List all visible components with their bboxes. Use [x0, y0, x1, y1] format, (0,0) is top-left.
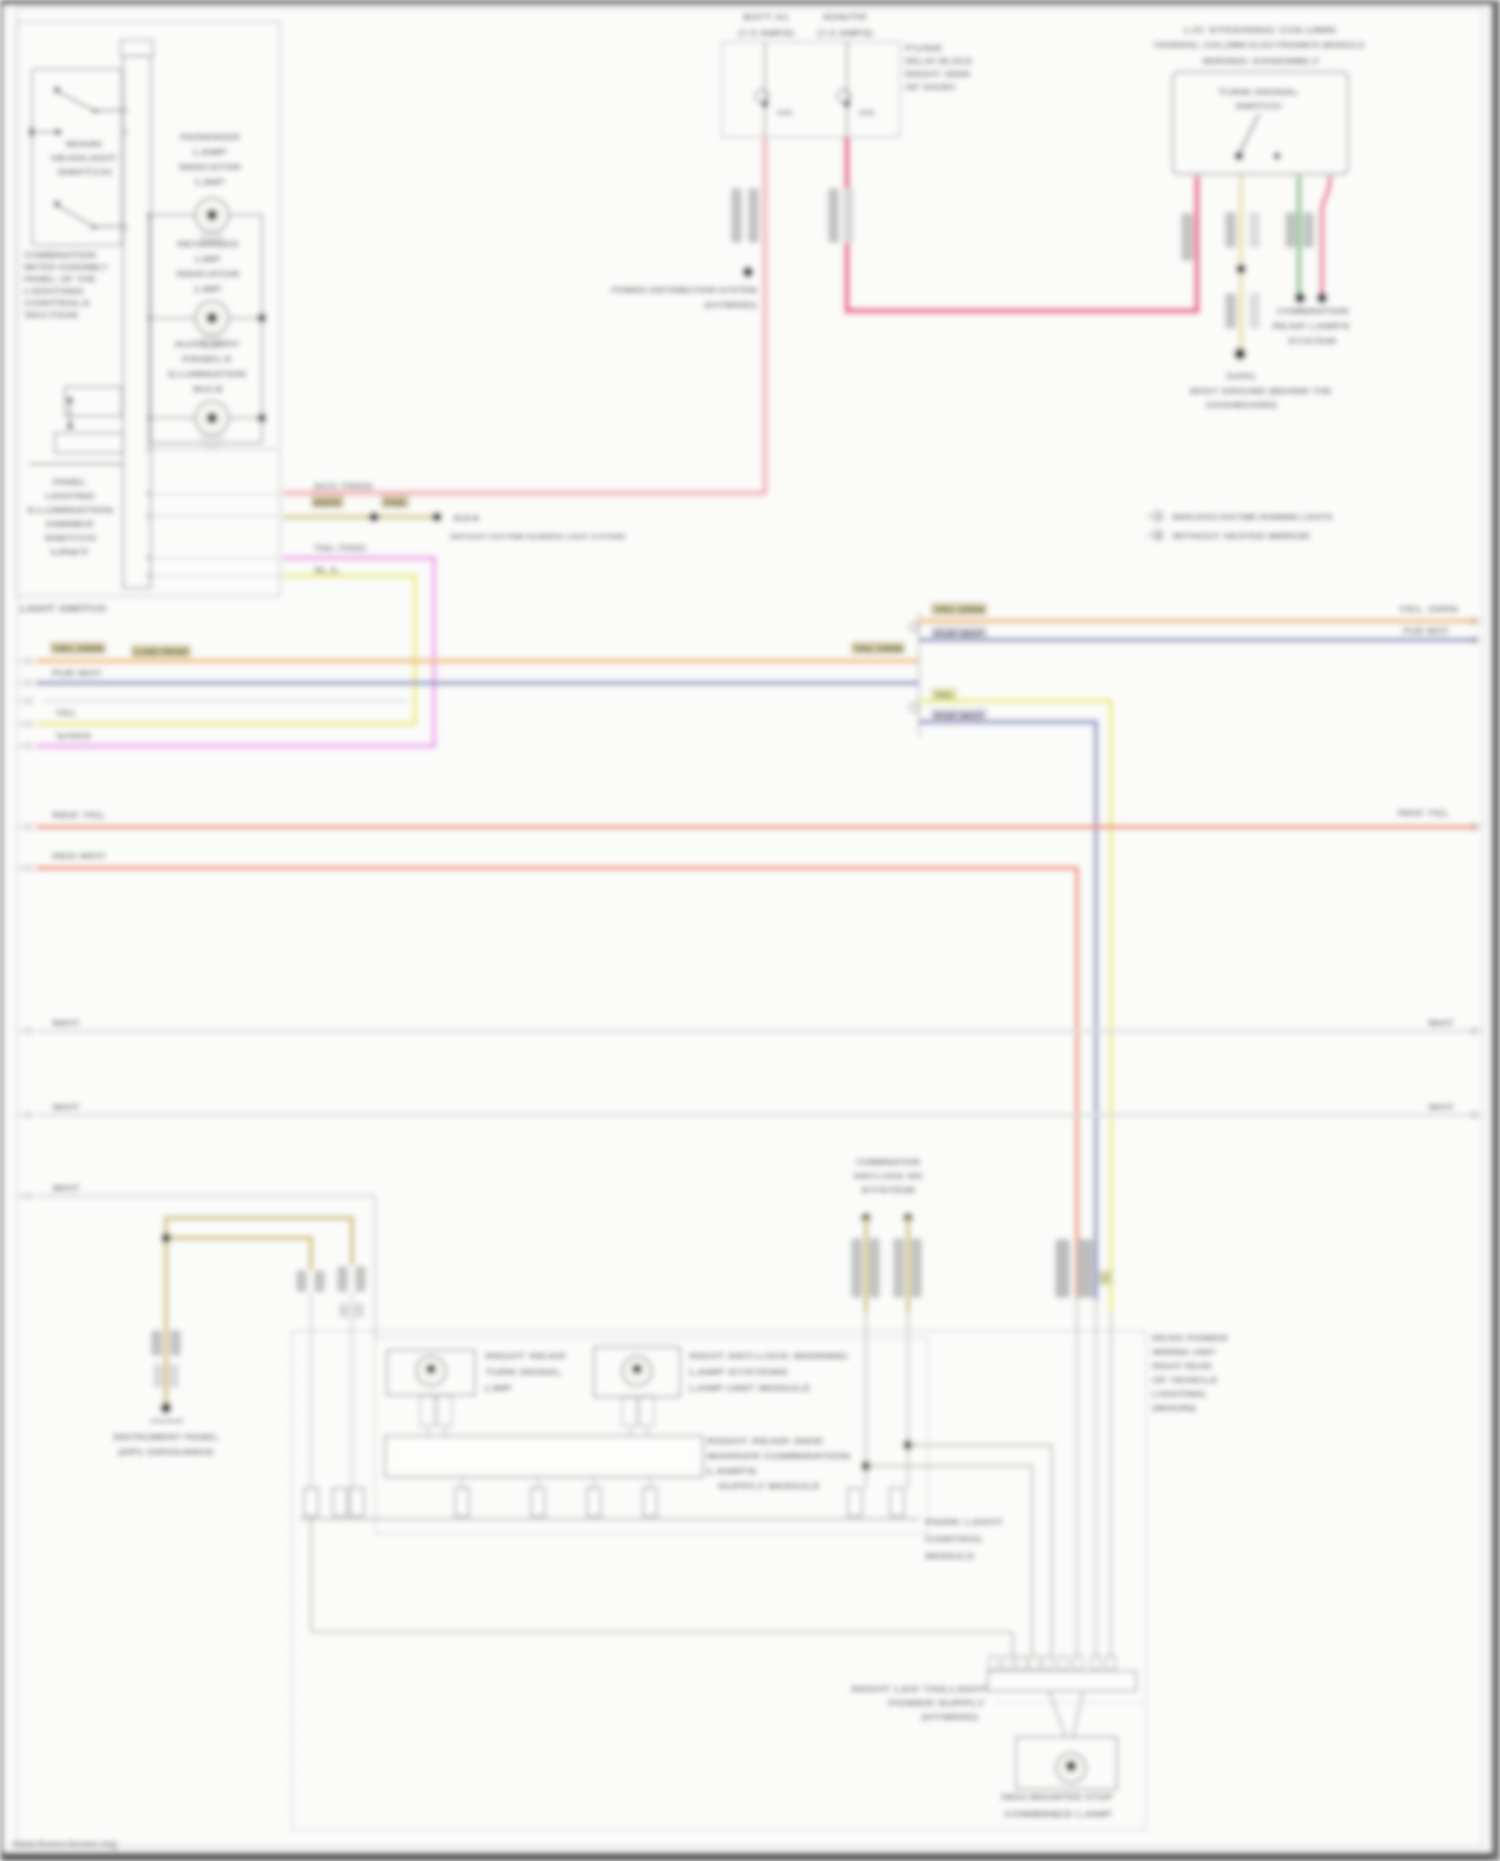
svg-text:TURN SIGNAL: TURN SIGNAL [1218, 88, 1299, 97]
svg-text:MAIN: MAIN [66, 140, 102, 149]
svg-text:RELAY BLOCK: RELAY BLOCK [905, 57, 973, 66]
svg-text:LIGHTING: LIGHTING [24, 287, 84, 296]
svg-text:(7.5 AMPS): (7.5 AMPS) [738, 29, 794, 38]
svg-text:FUSE: FUSE [905, 44, 944, 53]
svg-text:LMP: LMP [195, 178, 226, 187]
svg-text:YEL GRN: YEL GRN [1398, 605, 1458, 614]
svg-text:POWER DISTRIBUTION SYSTEM: POWER DISTRIBUTION SYSTEM [611, 286, 757, 295]
svg-text:10A: 10A [776, 108, 794, 117]
svg-text:IGN/TR: IGN/TR [823, 13, 867, 22]
svg-text:COMBINATION: COMBINATION [856, 1158, 920, 1167]
svg-text:COMBINATION: COMBINATION [1277, 307, 1349, 316]
svg-text:LMP: LMP [195, 255, 222, 264]
svg-text:RIGHT LED TAILLIGHT: RIGHT LED TAILLIGHT [851, 1685, 988, 1694]
svg-text:(7.5 AMPS): (7.5 AMPS) [817, 29, 873, 38]
svg-text:REAR LAMPS: REAR LAMPS [1272, 322, 1351, 331]
svg-text:(MAIN): (MAIN) [1152, 1404, 1197, 1413]
svg-text:LMP: LMP [194, 285, 223, 294]
svg-text:BODY GROUND (BEHIND THE: BODY GROUND (BEHIND THE [1190, 387, 1333, 396]
svg-text:PNK: PNK [384, 499, 406, 508]
svg-text:DIMMER: DIMMER [46, 520, 94, 529]
svg-text:COMBINED LAMP: COMBINED LAMP [1004, 1810, 1113, 1819]
svg-text:RIGHT ANTI-LOCK WARNING: RIGHT ANTI-LOCK WARNING [689, 1352, 848, 1361]
svg-text:S24: S24 [453, 514, 480, 523]
svg-text:RIGHT SIDE: RIGHT SIDE [905, 70, 972, 79]
svg-text:SUPPLY MODULE: SUPPLY MODULE [718, 1482, 821, 1491]
svg-text:AUXILIARY: AUXILIARY [174, 340, 241, 349]
svg-text:YEL: YEL [55, 709, 77, 718]
svg-text:LAMP: LAMP [193, 148, 228, 157]
svg-text:B: B [1156, 533, 1161, 540]
svg-text:WHT: WHT [1428, 1103, 1454, 1112]
svg-text:RED: RED [314, 499, 341, 508]
svg-text:WHT: WHT [52, 1103, 80, 1112]
svg-text:LMP: LMP [485, 1384, 513, 1393]
svg-text:CONTROLS: CONTROLS [24, 299, 91, 308]
svg-text:LIGHT SWITCH: LIGHT SWITCH [20, 604, 106, 615]
svg-text:A: A [1156, 514, 1161, 521]
svg-text:SWITCH: SWITCH [44, 534, 96, 543]
svg-text:PUR WHT: PUR WHT [934, 630, 984, 639]
svg-text:WIRING ASSEMBLY: WIRING ASSEMBLY [1202, 57, 1321, 66]
svg-text:LIGHTING: LIGHTING [45, 492, 95, 501]
svg-text:RIGHT REAR: RIGHT REAR [1152, 1362, 1212, 1371]
svg-text:WHT: WHT [52, 1184, 80, 1193]
svg-text:LIGHTING: LIGHTING [1152, 1390, 1206, 1399]
svg-text:SECTION: SECTION [24, 311, 78, 320]
svg-text:WHT: WHT [52, 1019, 80, 1028]
svg-text:OF DASH: OF DASH [905, 83, 955, 92]
svg-text:RIGHT REAR: RIGHT REAR [485, 1352, 566, 1361]
svg-text:HIGH MOUNTED STOP: HIGH MOUNTED STOP [1001, 1793, 1114, 1802]
svg-text:LAMPS: LAMPS [707, 1467, 758, 1476]
svg-text:(WITHOUT DAYTIME RUNNING LIGHT: (WITHOUT DAYTIME RUNNING LIGHT SYSTEM) [450, 532, 626, 541]
svg-text:REVERSED: REVERSED [177, 240, 239, 249]
svg-text:INSTRUMENT PANEL: INSTRUMENT PANEL [113, 1433, 219, 1442]
svg-text:VIO: VIO [55, 732, 91, 741]
svg-text:DASHBOARD): DASHBOARD) [1206, 401, 1277, 410]
svg-text:RED YEL: RED YEL [52, 811, 106, 820]
svg-text:WHT: WHT [1428, 1019, 1454, 1028]
svg-text:OF VEHICLE: OF VEHICLE [1152, 1376, 1219, 1385]
svg-text:INDICATOR: INDICATOR [176, 270, 240, 279]
svg-text:WITHOUT HEATED MIRROR: WITHOUT HEATED MIRROR [1172, 532, 1310, 541]
svg-text:ACC FEED: ACC FEED [313, 482, 373, 491]
svg-text:MODULE: MODULE [925, 1552, 976, 1561]
svg-text:TAIL FEED: TAIL FEED [314, 544, 366, 553]
svg-text:SWITCH: SWITCH [57, 168, 112, 177]
svg-text:ILLUMINATION: ILLUMINATION [168, 370, 246, 379]
svg-text:PASSENGER: PASSENGER [180, 133, 240, 142]
svg-text:LAMP SYSTEMS: LAMP SYSTEMS [689, 1368, 789, 1377]
svg-text:BATT A1: BATT A1 [743, 13, 790, 22]
svg-text:PUR WHT: PUR WHT [934, 712, 984, 721]
svg-text:RED YEL: RED YEL [1398, 809, 1450, 818]
svg-text:HEADLIGHT: HEADLIGHT [51, 154, 117, 163]
svg-text:YEL GRN: YEL GRN [854, 645, 902, 654]
svg-text:BULB: BULB [193, 385, 223, 394]
svg-text:INDICATOR: INDICATOR [179, 163, 241, 172]
svg-text:G201: G201 [1226, 372, 1257, 381]
svg-text:LHD RHD: LHD RHD [134, 648, 188, 657]
svg-text:PANEL: PANEL [53, 478, 87, 487]
svg-text:PUR WHT: PUR WHT [1403, 627, 1449, 636]
svg-text:TURN SIGNAL: TURN SIGNAL [485, 1368, 562, 1377]
svg-text:POWER SUPPLY: POWER SUPPLY [888, 1699, 986, 1708]
svg-text:PANELS: PANELS [182, 355, 233, 364]
svg-text:UNIT: UNIT [50, 548, 90, 557]
svg-text:LAMP UNIT MODULE: LAMP UNIT MODULE [689, 1384, 812, 1393]
svg-text:ANTI-LOCK SIG: ANTI-LOCK SIG [853, 1172, 923, 1181]
svg-text:RED WHT: RED WHT [52, 852, 106, 861]
svg-text:PANEL OF THE: PANEL OF THE [24, 275, 97, 284]
svg-text:COMBINATION: COMBINATION [24, 251, 96, 260]
svg-text:WIRING UNIT: WIRING UNIT [1152, 1348, 1216, 1357]
svg-text:(I/P) GROUNDS: (I/P) GROUNDS [118, 1448, 215, 1457]
svg-text:INDICATES DAYTIME RUNNING LIGH: INDICATES DAYTIME RUNNING LIGHTS [1172, 513, 1334, 522]
svg-text:METER ASSEMBLY: METER ASSEMBLY [24, 263, 109, 272]
svg-text:ILLUMINATION: ILLUMINATION [27, 506, 113, 515]
svg-text:www.fuses-boxes.org: www.fuses-boxes.org [11, 1839, 117, 1849]
svg-text:YEL GRN: YEL GRN [53, 645, 103, 654]
svg-text:RIGHT REAR SIDE: RIGHT REAR SIDE [707, 1437, 825, 1446]
svg-text:(HYBRID): (HYBRID) [704, 301, 757, 310]
svg-text:YEL: YEL [934, 691, 954, 700]
svg-text:SWITCH: SWITCH [1235, 102, 1281, 111]
svg-text:PUR WHT: PUR WHT [52, 669, 102, 678]
svg-text:10A: 10A [858, 108, 876, 117]
svg-text:(HYBRID): (HYBRID) [921, 1713, 979, 1722]
svg-text:REAR POWER: REAR POWER [1152, 1334, 1228, 1343]
svg-text:CONTROL: CONTROL [925, 1535, 984, 1544]
svg-text:MARKER COMBINATION: MARKER COMBINATION [707, 1452, 850, 1461]
svg-text:PARK LIGHT: PARK LIGHT [925, 1518, 1003, 1527]
svg-text:L/C STEERING COLUMN: L/C STEERING COLUMN [1184, 26, 1336, 35]
svg-text:ILL: ILL [314, 566, 342, 575]
svg-text:SYSTEM: SYSTEM [1288, 337, 1336, 346]
svg-text:YEL GRN: YEL GRN [934, 606, 984, 615]
svg-text:FEDERAL COLUMN ELECTRONICS MOD: FEDERAL COLUMN ELECTRONICS MODULE [1154, 41, 1366, 50]
svg-text:SYSTEM: SYSTEM [861, 1186, 916, 1195]
